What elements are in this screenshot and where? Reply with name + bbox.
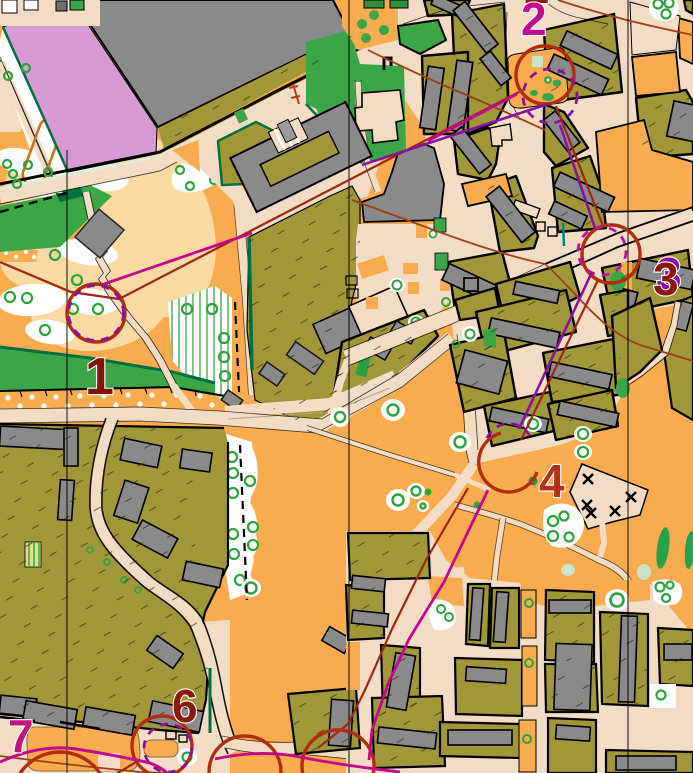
- svg-text:2: 2: [521, 0, 547, 45]
- svg-text:3: 3: [653, 253, 679, 305]
- svg-text:4: 4: [539, 455, 565, 507]
- svg-text:6: 6: [172, 680, 198, 732]
- svg-text:7: 7: [8, 710, 34, 762]
- svg-text:1: 1: [85, 348, 114, 406]
